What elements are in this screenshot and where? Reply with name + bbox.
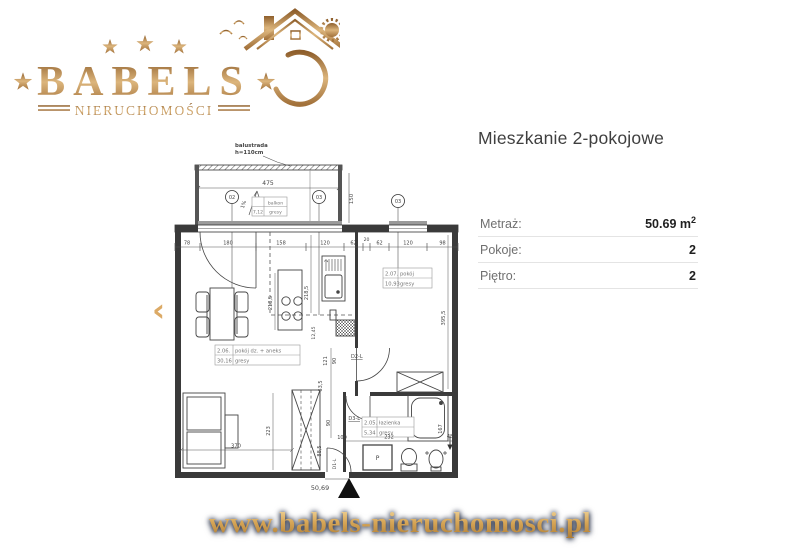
dim-2185b: 218,5	[304, 286, 310, 300]
detail-row-pokoje: Pokoje: 2	[478, 237, 698, 263]
dim-370: 370	[231, 444, 241, 450]
total-area-label: 50,69	[311, 484, 329, 492]
wardrobe-hall	[292, 390, 320, 470]
floor-plan-image: balustrada h=110cm 475 150 1% balkon 7,1…	[165, 133, 465, 508]
dim-sink-2: 2	[324, 259, 329, 262]
faucet	[337, 291, 340, 294]
sofa	[183, 393, 238, 468]
detail-value: 50.69 m2	[645, 215, 696, 231]
dim-167: 167	[438, 424, 444, 434]
dim-100: 100	[337, 435, 347, 441]
dim-2185a: 218,5	[268, 296, 274, 310]
bird-icon	[239, 37, 247, 40]
marker-02: 02	[229, 195, 235, 201]
crescent-swirl	[276, 52, 326, 104]
dim-top-98: 98	[439, 241, 445, 247]
room-name: pokój	[400, 271, 414, 278]
page: BABELS NIERUCHOMOŚCI ‹	[0, 0, 800, 559]
room-floor: gresy	[235, 359, 249, 365]
door-label-d1: D1-L	[332, 458, 338, 469]
room-area: 10,93	[385, 282, 400, 288]
dim-top-120b: 120	[403, 241, 413, 247]
details-table: Metraż: 50.69 m2 Pokoje: 2 Piętro: 2	[478, 209, 698, 289]
fridge	[336, 320, 355, 336]
detail-value: 2	[689, 243, 696, 257]
dim-top-62b: 62	[376, 241, 382, 247]
bird-icon	[220, 31, 232, 35]
cooktop-burner	[294, 297, 302, 305]
chevron-left-icon: ‹	[152, 291, 165, 329]
babels-logo: BABELS NIERUCHOMOŚCI	[10, 3, 340, 128]
dim-top-78: 78	[184, 241, 190, 247]
kitchen-sink	[325, 275, 342, 298]
room-area: 5,34	[364, 431, 376, 437]
washer-label: P	[376, 455, 380, 462]
balcony: balustrada h=110cm 475 150 1% balkon 7,1…	[195, 143, 355, 225]
cooktop-burner	[294, 312, 302, 320]
detail-row-metraz: Metraż: 50.69 m2	[478, 209, 698, 237]
dim-top-120: 120	[320, 241, 330, 247]
north-arrow-icon	[338, 478, 360, 498]
dim-balcony-width: 475	[262, 180, 274, 187]
dim-3955: 395,5	[441, 311, 447, 326]
room-label-living: 2.06. pokój dz. + aneks 30,16 gresy	[215, 345, 300, 365]
dim-1245: 12,45	[311, 326, 317, 339]
dim-223: 223	[266, 426, 272, 436]
balustrade-note-2: h=110cm	[235, 150, 264, 156]
dim-885: 88,5	[317, 445, 323, 456]
dim-top-62a: 62	[350, 241, 356, 247]
bathroom-sink	[425, 450, 447, 471]
dim-232: 232	[384, 435, 394, 441]
website-url-link[interactable]: www.babels-nieruchomosci.pl	[209, 507, 591, 540]
detail-label: Metraż:	[480, 217, 522, 231]
dining-set	[196, 288, 248, 340]
marker-03a: 03	[316, 195, 322, 201]
cooktop-burner	[282, 312, 290, 320]
kitchen	[278, 256, 355, 336]
room-name: pokój dz. + aneks	[235, 348, 282, 355]
room-name: łazienka	[379, 421, 400, 427]
dim-top-20: 20	[364, 237, 370, 243]
balcony-name: balkon	[268, 201, 283, 207]
balustrade-note: balustrada	[235, 143, 268, 149]
detail-label: Piętro:	[480, 269, 516, 283]
room-label-bedroom: 2.07. pokój 10,93 gresy	[383, 268, 432, 288]
room-no: 2.05.	[364, 421, 378, 427]
toilet	[401, 449, 417, 472]
dim-48: 48	[447, 434, 453, 440]
logo-brand-text: BABELS	[37, 59, 251, 105]
dim-balcony-depth: 150	[349, 193, 355, 204]
door-label-d2: D2-L	[351, 354, 363, 360]
dim-121: 121	[323, 356, 329, 366]
roof-window	[291, 31, 300, 39]
detail-value: 2	[689, 269, 696, 283]
listing-panel: Mieszkanie 2-pokojowe Metraż: 50.69 m2 P…	[478, 128, 698, 289]
dimension-chain-top: 78 180 158 120 62 20 62 120 98	[175, 237, 458, 251]
room-no: 2.06.	[217, 349, 231, 355]
cooktop-burner	[282, 297, 290, 305]
footer: www.babels-nieruchomosci.pl	[0, 503, 800, 559]
dim-90b: 90	[326, 420, 332, 426]
dim-635: 63,5	[318, 380, 324, 391]
room-floor: gresy	[400, 282, 414, 288]
marker-03b: 03	[395, 199, 401, 205]
bird-icon	[234, 21, 244, 24]
room-no: 2.07.	[385, 272, 399, 278]
slope-label: 1%	[240, 200, 248, 210]
wardrobe-bedroom	[397, 372, 443, 392]
dim-top-180: 180	[223, 241, 233, 247]
dim-top-158: 158	[276, 241, 286, 247]
logo-subtitle-text: NIERUCHOMOŚCI	[75, 103, 214, 118]
page-title: Mieszkanie 2-pokojowe	[478, 128, 698, 149]
balcony-floor: gresy	[269, 210, 282, 216]
dim-90a: 90	[332, 358, 338, 364]
balcony-area: 7,12	[253, 210, 263, 216]
door-label-d3: D3-L	[348, 416, 360, 422]
detail-label: Pokoje:	[480, 243, 522, 257]
detail-row-pietro: Piętro: 2	[478, 263, 698, 289]
balcony-label-table: balkon 7,12 gresy	[252, 197, 287, 216]
room-area: 30,16	[217, 359, 232, 365]
sun-icon	[325, 23, 339, 37]
